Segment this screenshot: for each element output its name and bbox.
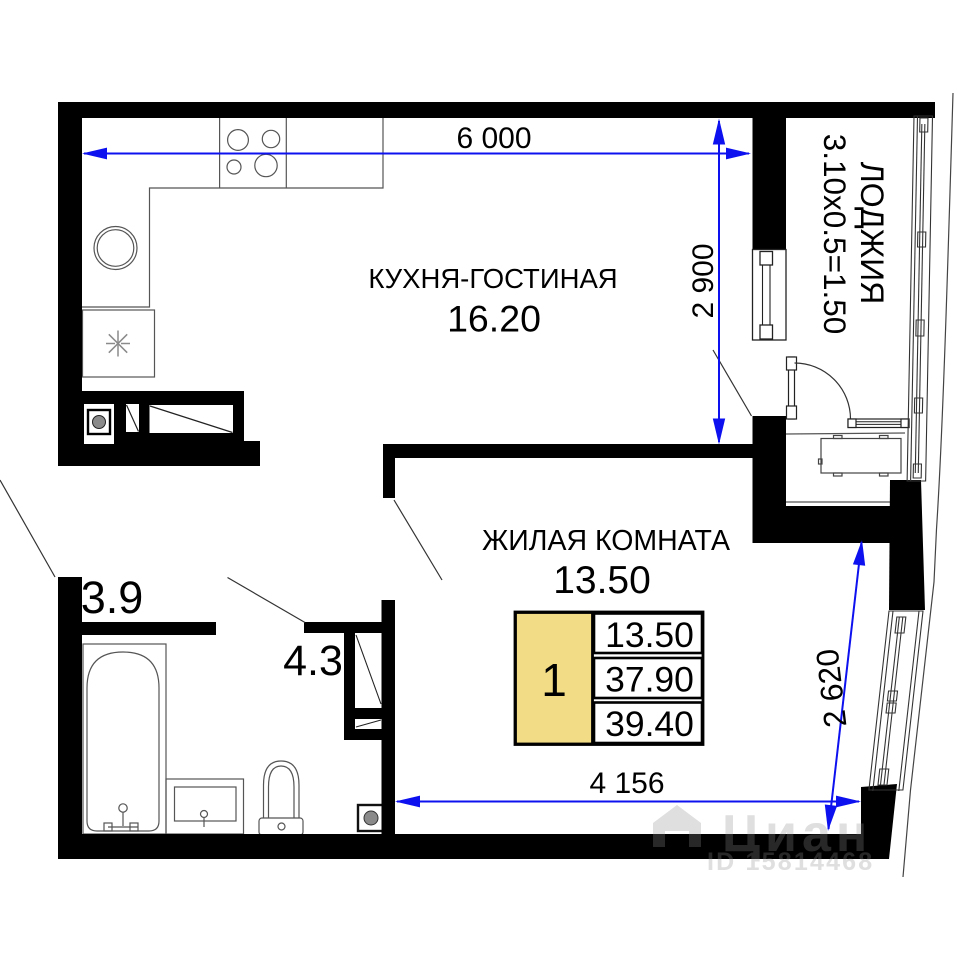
svg-text:3.10х0.5=1.50: 3.10х0.5=1.50 xyxy=(817,134,853,335)
svg-text:ЛОДЖИЯ: ЛОДЖИЯ xyxy=(854,162,890,305)
svg-text:6 000: 6 000 xyxy=(456,122,531,155)
svg-text:13.50: 13.50 xyxy=(605,615,694,655)
svg-text:3.9: 3.9 xyxy=(81,572,144,623)
svg-text:13.50: 13.50 xyxy=(553,559,651,602)
svg-text:1: 1 xyxy=(541,654,567,706)
svg-text:ЖИЛАЯ КОМНАТА: ЖИЛАЯ КОМНАТА xyxy=(482,525,730,557)
svg-text:37.90: 37.90 xyxy=(605,660,694,700)
svg-text:2 900: 2 900 xyxy=(687,243,720,318)
svg-text:4 156: 4 156 xyxy=(589,767,664,800)
svg-text:39.40: 39.40 xyxy=(605,704,694,744)
svg-text:4.3: 4.3 xyxy=(283,637,343,685)
svg-text:16.20: 16.20 xyxy=(447,298,541,340)
svg-text:КУХНЯ-ГОСТИНАЯ: КУХНЯ-ГОСТИНАЯ xyxy=(368,263,617,294)
